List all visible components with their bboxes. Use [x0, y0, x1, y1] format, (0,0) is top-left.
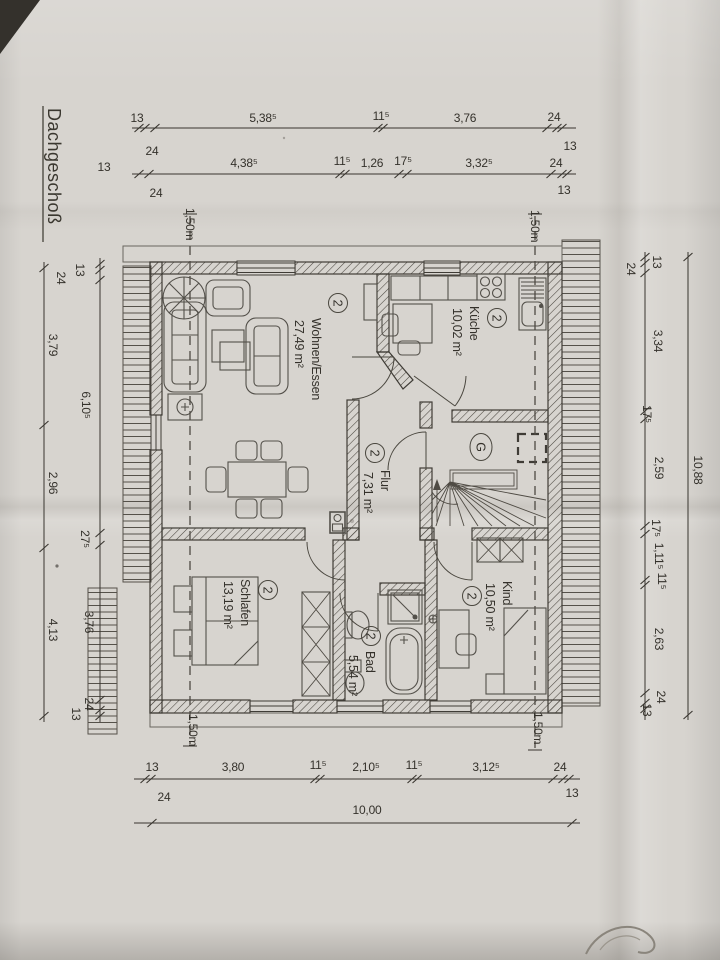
staircase	[432, 470, 546, 526]
dim-label: 2,96	[46, 472, 60, 495]
dim-label: 2,59	[652, 457, 666, 480]
door-stair-hall	[388, 432, 426, 470]
dim-label: 3,76	[454, 111, 477, 125]
svg-text:Kind: Kind	[500, 581, 514, 605]
dining-table	[228, 462, 286, 497]
dim-label: 4,13	[46, 619, 60, 642]
dim-label: 2,63	[652, 628, 666, 651]
dim-label: 11⁵	[373, 109, 390, 123]
coffee-table	[212, 330, 250, 370]
svg-text:27,49 m²: 27,49 m²	[292, 320, 306, 368]
height-line-label: 1,50m	[186, 714, 200, 747]
dim-label: 1,11⁵	[652, 543, 666, 570]
dim-left-outer: 3,79 2,96 4,13	[40, 262, 61, 722]
svg-text:2: 2	[368, 450, 382, 457]
window-left-living	[151, 415, 161, 450]
dim-top-row1: 13 5,38⁵ 11⁵ 3,76 24 24 13	[131, 109, 577, 158]
dim-bottom-total: 10,00	[134, 803, 580, 827]
dim-label: 17⁵	[394, 154, 412, 168]
sofa-right	[246, 318, 288, 394]
dim-label: 4,38⁵	[230, 156, 258, 170]
dim-label: 11⁵	[655, 573, 669, 590]
dim-label: 17⁵	[649, 519, 663, 537]
dim-label: 13	[98, 160, 111, 174]
height-line-label: 1,50m	[531, 712, 545, 745]
plant	[163, 277, 205, 319]
roof-overhang-left	[88, 266, 151, 734]
svg-text:10,02 m²: 10,02 m²	[450, 308, 464, 356]
dim-label: 11⁵	[310, 758, 327, 772]
room-label-flur: 2 Flur7,31 m²	[361, 444, 392, 514]
desk-kind	[439, 610, 476, 668]
chimney	[518, 434, 546, 462]
floor-title: Dachgeschoß	[43, 106, 64, 242]
dim-label: 24	[654, 691, 668, 704]
dim-label: 11⁵	[406, 758, 423, 772]
svg-text:Bad: Bad	[363, 651, 377, 673]
dim-label: 13	[146, 760, 159, 774]
dim-label: 3,32⁵	[465, 156, 493, 170]
dim-label: 24	[550, 156, 563, 170]
dim-right-inner: 13 24 3,34 17⁵ 2,59 17⁵ 1,11⁵ 11⁵ 2,63 2…	[624, 252, 669, 720]
wardrobe-schlafen	[302, 592, 330, 696]
dim-label: 10,88	[691, 455, 705, 485]
dim-label: 10,00	[352, 803, 382, 817]
sofa-left	[164, 302, 206, 392]
side-table-lamp	[168, 394, 202, 420]
svg-text:Küche: Küche	[467, 306, 481, 341]
dim-right-outer: 10,88	[684, 252, 706, 720]
dim-label: 24	[150, 186, 163, 200]
dim-label: 17⁵	[640, 405, 654, 423]
svg-text:10,50 m²: 10,50 m²	[483, 583, 497, 631]
dim-label: 3,76	[82, 611, 96, 634]
stair-label-text: G	[474, 442, 488, 452]
svg-text:Wohnen/Essen: Wohnen/Essen	[309, 318, 323, 400]
dim-label: 3,34	[651, 330, 665, 353]
room-label-kueche: 2 Küche10,02 m²	[450, 306, 507, 356]
dim-label: 13	[69, 708, 83, 721]
dim-label: 2,10⁵	[352, 760, 380, 774]
dim-label: 1,26	[361, 156, 384, 170]
window-top-kitchen	[424, 261, 460, 275]
floor-plan-svg: G 1,50m 1,50m 1,50m 1,50m 2 Wohnen/Essen…	[0, 0, 720, 960]
dim-label: 13	[131, 111, 144, 125]
room-label-kind: 2 Kind10,50 m²	[463, 581, 515, 631]
armchair	[206, 280, 250, 316]
svg-text:Flur: Flur	[378, 470, 392, 491]
window-bottom-bad	[337, 701, 383, 712]
page-curl	[586, 927, 654, 954]
radiator-valve	[429, 615, 437, 623]
bathtub	[386, 628, 422, 694]
dim-label: 5,38⁵	[249, 111, 277, 125]
dim-bottom-row1: 13 3,80 11⁵ 2,10⁵ 11⁵ 3,12⁵ 24 24 13	[134, 758, 580, 804]
dim-label: 24	[54, 272, 68, 285]
kitchen-sink	[519, 278, 546, 330]
dim-label: 6,10⁵	[79, 391, 93, 419]
height-line-label: 1,50m	[528, 210, 542, 243]
heater	[330, 512, 345, 533]
svg-text:5,54 m²: 5,54 m²	[346, 655, 360, 696]
svg-text:Schlafen: Schlafen	[238, 579, 252, 626]
dim-label: 3,12⁵	[472, 760, 500, 774]
height-line-label: 1,50m	[183, 208, 197, 241]
roof-overhang-right	[562, 240, 600, 706]
window-top-living	[237, 261, 295, 275]
kitchen-counter	[391, 276, 477, 300]
dim-label: 24	[146, 144, 159, 158]
nightstands-schlafen	[174, 586, 192, 656]
window-bottom-kind	[430, 701, 471, 712]
dim-label: 27⁵	[78, 530, 92, 548]
door-kind	[434, 542, 472, 580]
dim-top-row2: 13 4,38⁵ 11⁵ 1,26 17⁵ 3,32⁵ 24 24 13	[98, 154, 576, 200]
dining-chairs	[206, 441, 308, 518]
dim-label: 13	[564, 139, 577, 153]
room-label-schlafen: 2 Schlafen13,19 m²	[221, 579, 278, 629]
floor-title-text: Dachgeschoß	[44, 108, 64, 225]
svg-text:2: 2	[331, 300, 345, 307]
svg-text:2: 2	[490, 315, 504, 322]
window-bottom-schlafen	[250, 701, 293, 712]
svg-text:13,19 m²: 13,19 m²	[221, 581, 235, 629]
svg-text:2: 2	[465, 593, 479, 600]
svg-text:2: 2	[261, 587, 275, 594]
dim-label: 24	[82, 698, 96, 711]
svg-text:7,31 m²: 7,31 m²	[361, 472, 375, 513]
room-label-wohnen: 2 Wohnen/Essen27,49 m²	[292, 294, 348, 401]
dim-label: 13	[73, 264, 87, 277]
dim-label: 13	[650, 256, 664, 269]
nightstand-kind	[486, 674, 504, 694]
interior-walls	[162, 274, 548, 700]
bed-kind	[504, 608, 546, 694]
dim-label: 11⁵	[334, 154, 351, 168]
stove	[477, 274, 505, 300]
dim-label: 3,80	[222, 760, 245, 774]
wardrobe-kind	[477, 538, 523, 562]
svg-text:2: 2	[364, 633, 378, 640]
dim-label: 13	[566, 786, 579, 800]
dim-label: 24	[554, 760, 567, 774]
dim-label: 24	[158, 790, 171, 804]
scanned-floor-plan-page: G 1,50m 1,50m 1,50m 1,50m 2 Wohnen/Essen…	[0, 0, 720, 960]
dim-label: 13	[640, 704, 654, 717]
dim-label: 24	[624, 263, 638, 276]
stair-label-g: G	[470, 434, 492, 461]
dim-label: 24	[548, 110, 561, 124]
shelf	[364, 284, 377, 320]
dim-label: 3,79	[46, 334, 60, 357]
dim-label: 13	[558, 183, 571, 197]
